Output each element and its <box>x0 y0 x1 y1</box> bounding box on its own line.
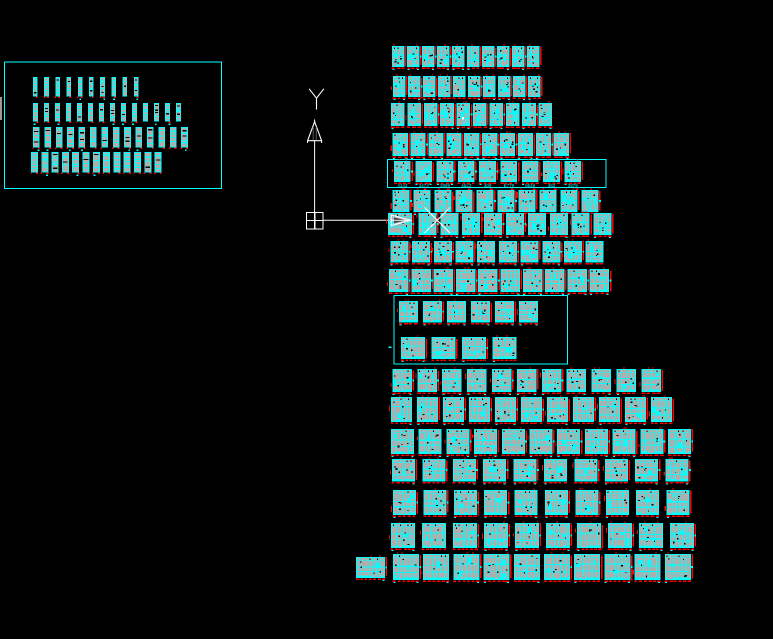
svg-text:3473: 3473 <box>419 183 430 188</box>
svg-text:309: 309 <box>484 183 492 188</box>
svg-text:E779: E779 <box>504 183 515 188</box>
svg-text:9549: 9549 <box>525 183 536 188</box>
svg-text:4143: 4143 <box>397 183 408 188</box>
svg-text:4523: 4523 <box>461 183 472 188</box>
svg-text:382: 382 <box>548 183 556 188</box>
svg-text:3999: 3999 <box>440 183 451 188</box>
svg-text:3979: 3979 <box>568 183 579 188</box>
